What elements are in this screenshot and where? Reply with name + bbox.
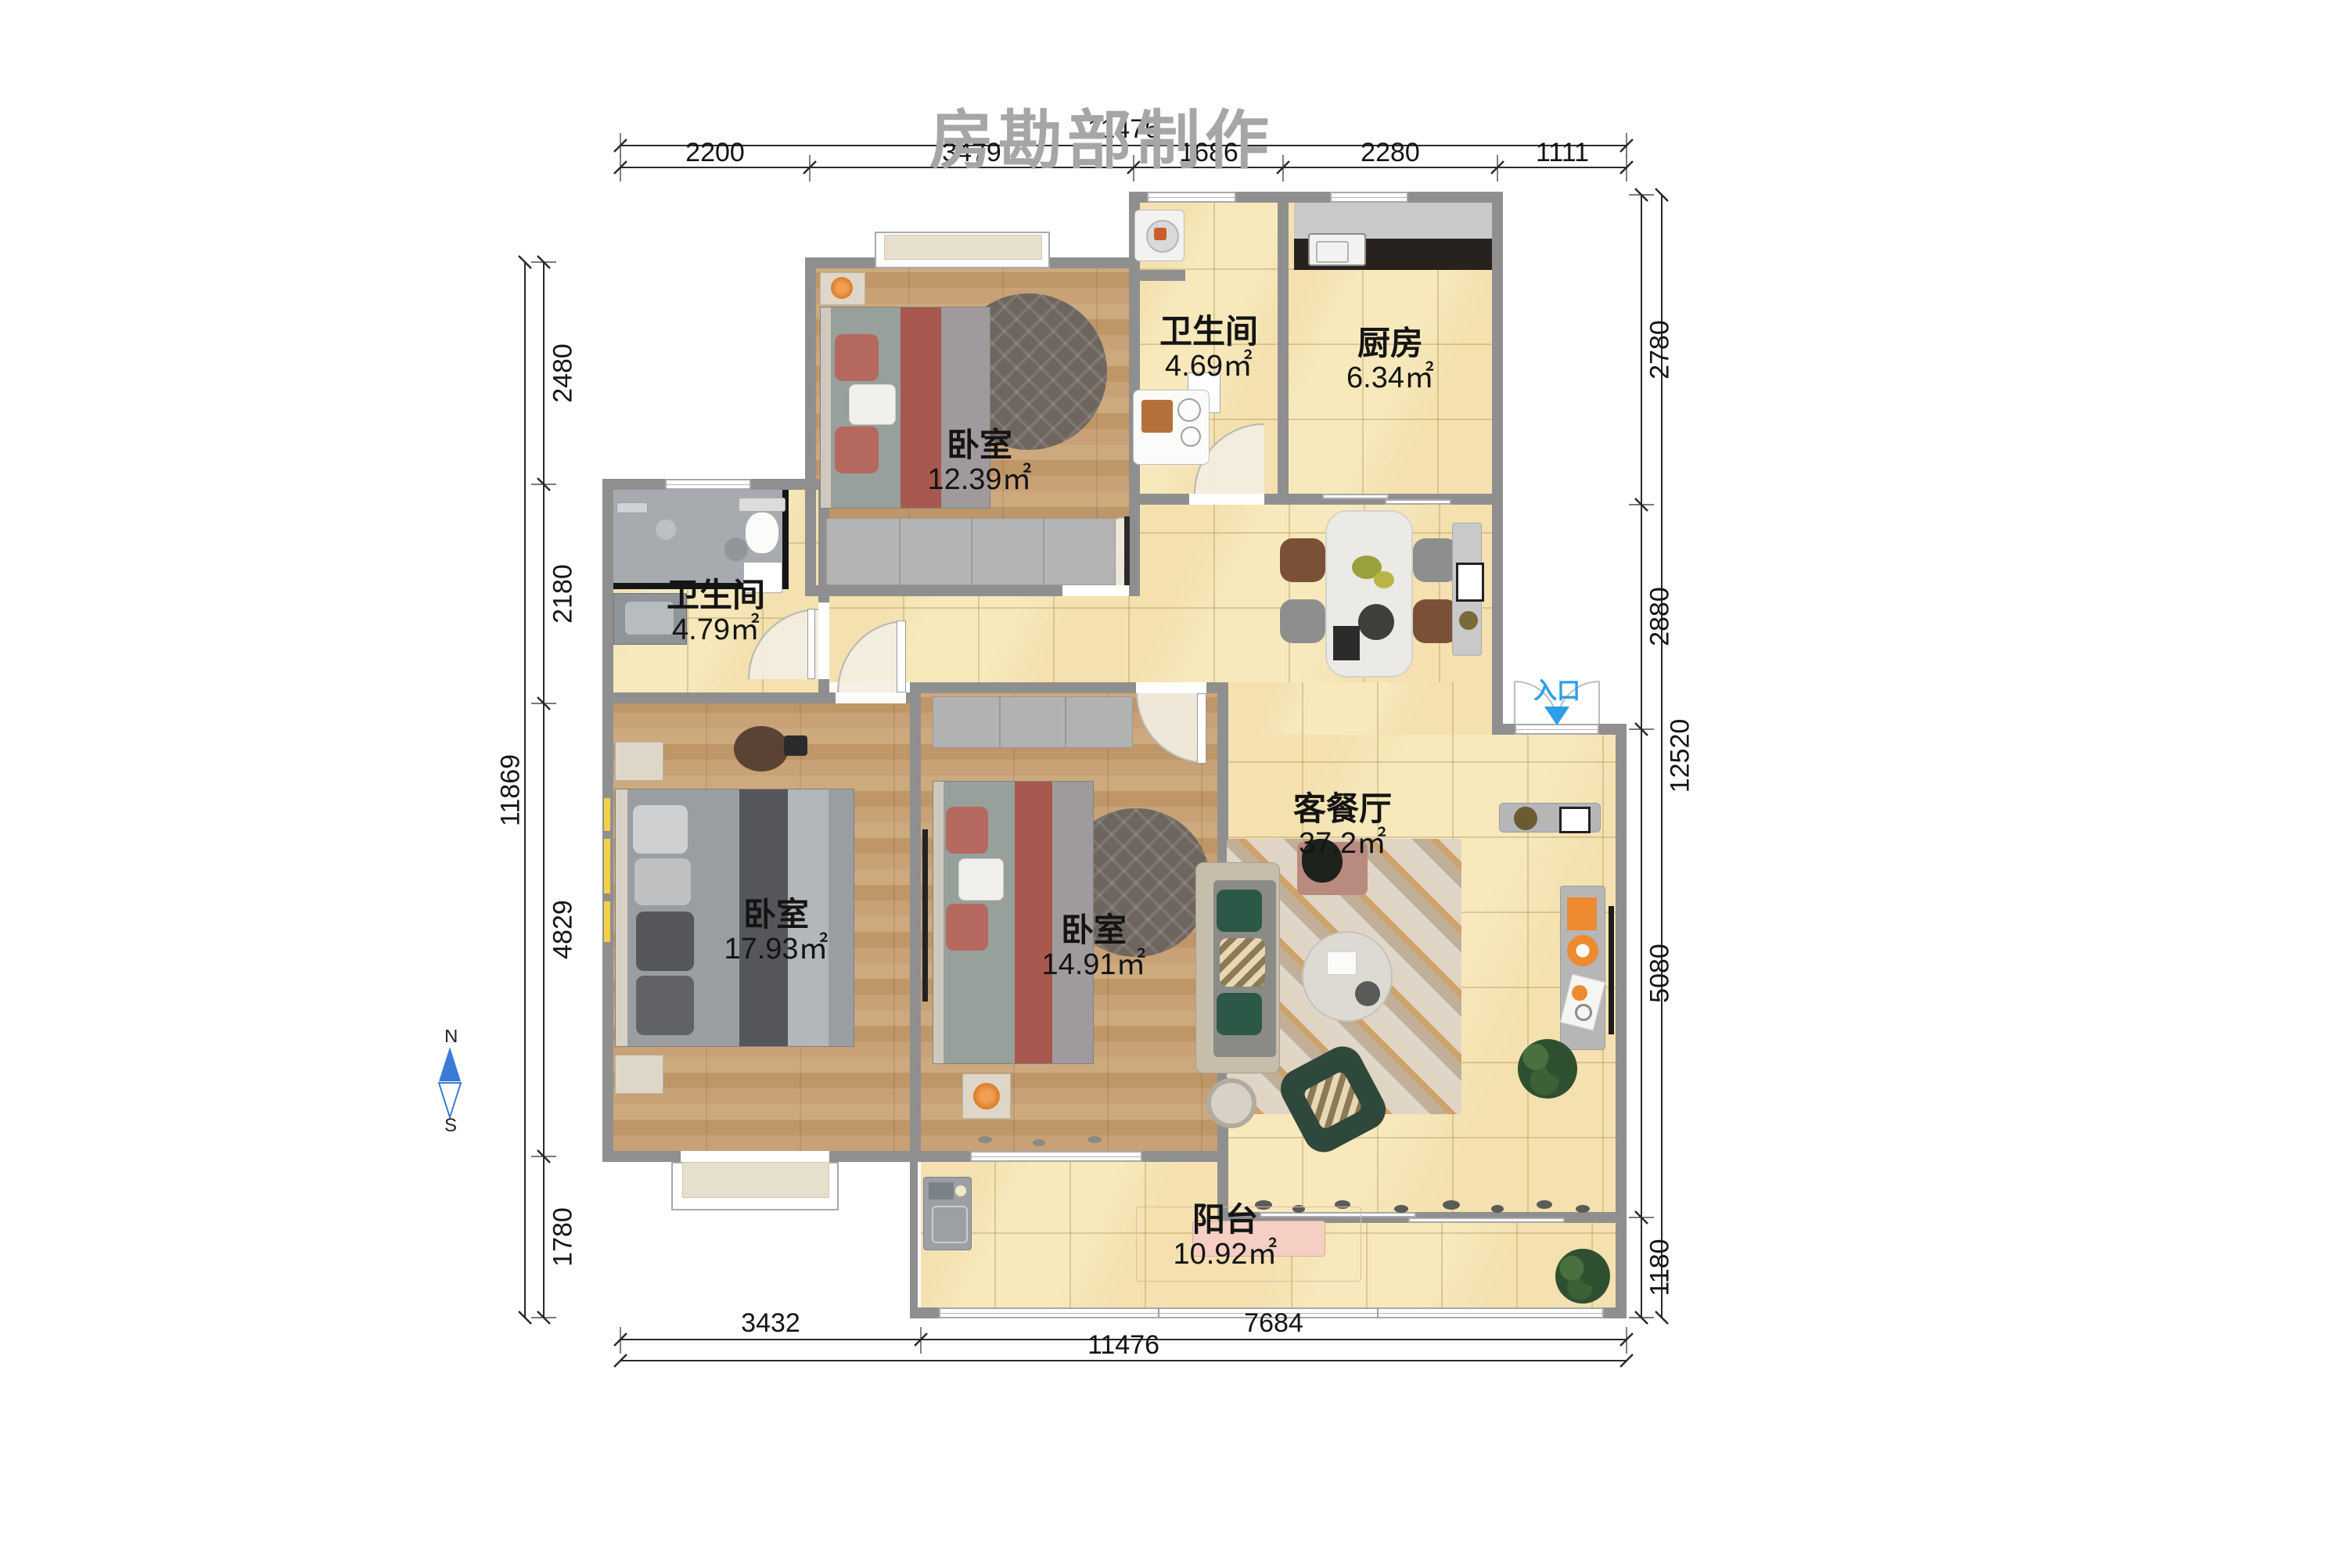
dim-left-seg: 2180 xyxy=(548,564,579,624)
pillow xyxy=(636,912,694,971)
room-label-bedroom-top: 卧室12.39㎡ xyxy=(927,426,1031,497)
armchair xyxy=(734,726,789,771)
coffee-table xyxy=(1302,931,1393,1022)
headboard xyxy=(821,307,831,508)
plant-icon xyxy=(1518,1039,1577,1099)
dim-top-seg: 2200 xyxy=(685,138,745,168)
pillow xyxy=(634,858,691,905)
dim-right-seg: 1180 xyxy=(1645,1239,1676,1296)
dining-chair xyxy=(1280,599,1325,643)
pillow xyxy=(1303,1070,1364,1131)
sliding-door xyxy=(1408,1217,1565,1223)
sliding-door xyxy=(1385,499,1451,505)
compass-south-label: S xyxy=(444,1115,457,1131)
living-floor-upper xyxy=(1228,682,1492,735)
window-sill xyxy=(884,235,1042,260)
room-label-bath-left: 卫生间4.79㎡ xyxy=(667,577,765,647)
wall xyxy=(1278,192,1289,505)
console-table xyxy=(1452,523,1482,656)
pillow xyxy=(849,384,896,425)
wall xyxy=(1129,270,1185,281)
tv-console xyxy=(1560,886,1605,1050)
radiator xyxy=(604,798,610,831)
door-leaf xyxy=(807,609,815,679)
pillow xyxy=(1217,993,1262,1035)
dim-right-overall: 12520 xyxy=(1666,719,1696,793)
door-opening xyxy=(681,1151,829,1162)
room-label-living: 客餐厅37.2㎡ xyxy=(1293,790,1392,861)
door-opening xyxy=(818,602,829,679)
door-leaf xyxy=(1197,693,1206,764)
floor-plan-canvas: 房勘部制作 xyxy=(0,0,2351,1568)
lamp-icon xyxy=(973,1083,1000,1109)
dim-left-seg: 1780 xyxy=(548,1207,579,1267)
dim-bottom-overall: 11476 xyxy=(1087,1330,1159,1361)
dim-right-seg: 2780 xyxy=(1645,320,1676,379)
wardrobe xyxy=(933,696,1133,748)
dim-left-overall: 11869 xyxy=(496,754,527,826)
compass-icon: N S xyxy=(419,1030,481,1131)
plant-icon xyxy=(1555,1249,1610,1304)
headboard xyxy=(616,789,627,1046)
dim-left-seg: 2480 xyxy=(548,343,579,403)
compass-north-label: N xyxy=(444,1030,458,1047)
sliding-door xyxy=(1322,494,1389,499)
washing-machine xyxy=(923,1177,972,1250)
radiator xyxy=(604,901,610,942)
window xyxy=(665,479,751,490)
entry-door xyxy=(1515,724,1599,735)
dim-bottom-seg: 7684 xyxy=(1244,1308,1303,1339)
window-mullion xyxy=(1377,1307,1379,1318)
room-label-bedroom-mid: 卧室14.91㎡ xyxy=(1041,912,1145,982)
wardrobe xyxy=(826,518,1116,585)
room-label-balcony: 阳台10.92㎡ xyxy=(1173,1201,1277,1271)
pillow xyxy=(835,426,879,473)
dim-top-seg: 1111 xyxy=(1536,138,1589,168)
wall xyxy=(1616,724,1627,1318)
pillow xyxy=(636,976,694,1035)
plant-icon xyxy=(1459,611,1478,630)
dim-bottom-seg: 3432 xyxy=(741,1308,800,1339)
pillow xyxy=(958,858,1004,901)
entry-label: 入口 xyxy=(1533,671,1580,706)
side-table xyxy=(784,735,807,756)
dim-right-seg: 2880 xyxy=(1645,587,1676,646)
tv-strip xyxy=(922,829,928,1002)
window xyxy=(1330,192,1408,203)
room-label-kitchen: 厨房6.34㎡ xyxy=(1346,325,1434,395)
door-opening xyxy=(836,692,906,703)
pillow xyxy=(633,805,688,854)
kitchen-sink xyxy=(1308,233,1366,266)
pillow xyxy=(946,904,988,951)
door-leaf xyxy=(897,620,906,692)
watermark-title: 房勘部制作 xyxy=(929,88,1274,182)
shower-head-icon xyxy=(617,502,648,513)
dining-table xyxy=(1325,510,1413,678)
pillow xyxy=(1217,890,1262,932)
sideboard xyxy=(1499,803,1601,833)
nightstand xyxy=(615,742,663,781)
wall xyxy=(910,682,921,1162)
bathroom-vanity xyxy=(1133,390,1210,465)
pillow xyxy=(835,334,879,381)
radiator xyxy=(604,839,610,894)
window xyxy=(970,1151,1142,1162)
nightstand xyxy=(615,1055,663,1094)
toilet xyxy=(745,512,779,554)
wall xyxy=(1492,192,1503,735)
dim-left-seg: 4829 xyxy=(548,900,579,959)
door-opening xyxy=(1136,682,1206,693)
room-label-bath-top: 卫生间4.69㎡ xyxy=(1159,313,1258,383)
lamp-icon xyxy=(831,277,853,299)
wall xyxy=(910,1162,918,1318)
washing-machine xyxy=(1134,210,1184,261)
pillow xyxy=(946,807,988,854)
plant-icon xyxy=(1514,807,1537,830)
dim-right-seg: 5080 xyxy=(1645,944,1676,1003)
headboard xyxy=(933,782,944,1063)
window-mullion xyxy=(1158,1307,1159,1318)
pillow xyxy=(1220,938,1265,987)
sofa xyxy=(1195,862,1280,1074)
bay-window-seat xyxy=(682,1162,829,1198)
toilet xyxy=(739,498,785,512)
dining-chair xyxy=(1280,538,1325,582)
entry-arrow-icon xyxy=(1544,707,1569,725)
door-opening xyxy=(1189,494,1264,505)
dim-top-seg: 2280 xyxy=(1361,138,1420,168)
tv xyxy=(1609,906,1614,1034)
picture-frame xyxy=(1559,807,1591,833)
picture-frame xyxy=(1456,563,1484,602)
door-opening xyxy=(1062,585,1129,596)
window xyxy=(1147,192,1236,203)
dining-floor xyxy=(1140,505,1492,682)
door-leaf xyxy=(1124,516,1130,585)
room-label-bedroom-left: 卧室17.93㎡ xyxy=(724,896,828,966)
wall xyxy=(805,257,816,596)
side-table xyxy=(1206,1078,1256,1128)
